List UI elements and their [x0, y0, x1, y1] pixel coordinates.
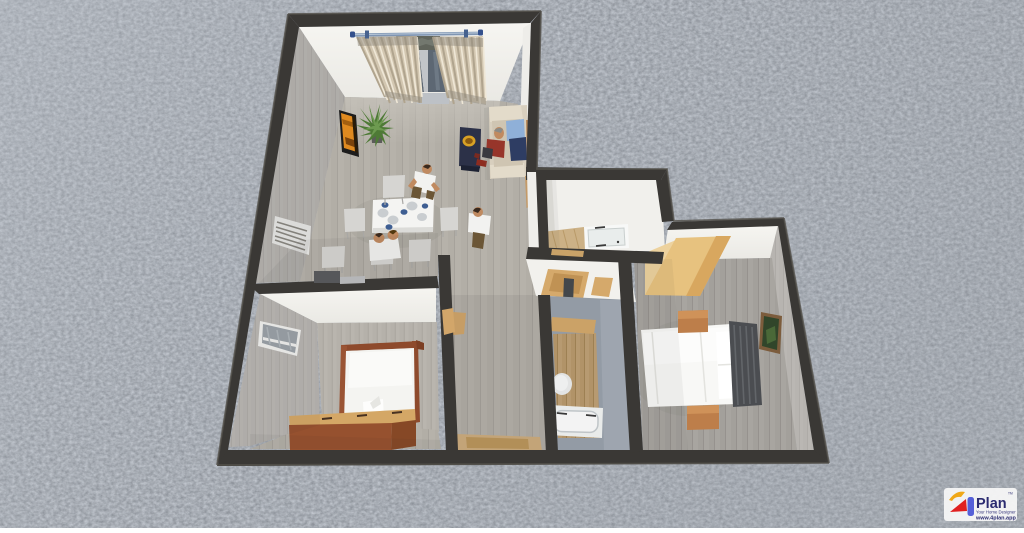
svg-text:Your Home Designer: Your Home Designer: [976, 510, 1016, 515]
svg-text:TM: TM: [1008, 492, 1013, 496]
svg-text:www.4plan.app: www.4plan.app: [975, 516, 1016, 522]
